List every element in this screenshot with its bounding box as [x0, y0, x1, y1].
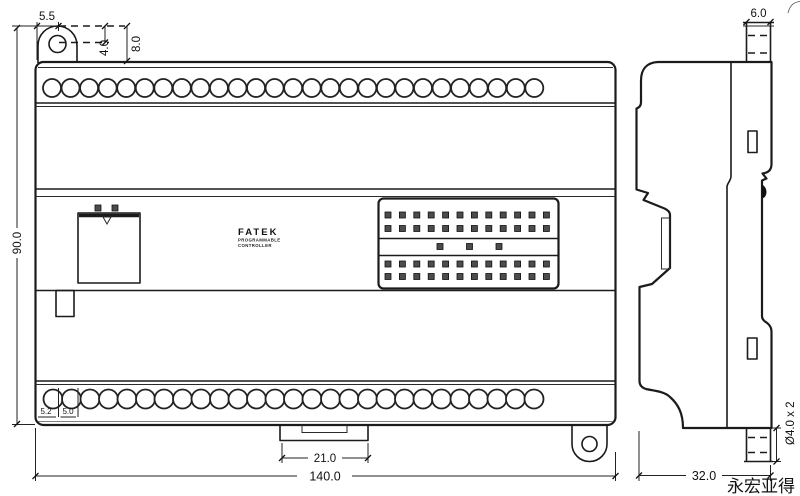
- mount-post-bottom-hidden: [748, 438, 769, 453]
- dimension-drawing: FATEK PROGRAMMABLE CONTROLLER 5.5: [0, 0, 800, 496]
- dim-height: 90.0: [12, 232, 24, 254]
- dim-hole-drop: 4.0: [99, 40, 111, 56]
- door-indicator-2: [112, 205, 118, 211]
- din-clip-inner: [302, 425, 347, 433]
- side-profile: [637, 62, 772, 428]
- door-latch-triangle: [103, 217, 111, 224]
- dim-top-drop: 8.0: [131, 36, 143, 52]
- dim-depth: 32.0: [692, 469, 716, 483]
- drawing-canvas: FATEK PROGRAMMABLE CONTROLLER 5.5: [0, 0, 800, 496]
- watermark-text: 永宏亚得: [727, 477, 795, 496]
- dim-clip-width: 21.0: [314, 453, 336, 465]
- mount-post-bottom: [744, 428, 773, 462]
- brand-text: FATEK: [238, 227, 278, 238]
- dim-ear-offset: 5.5: [39, 11, 55, 23]
- side-dimensions: Ø4.0 x 2 32.0: [636, 402, 797, 483]
- fatek-logo: FATEK PROGRAMMABLE CONTROLLER: [238, 227, 281, 248]
- mount-post-top-hidden: [748, 36, 769, 54]
- mounting-ear-bottom: [572, 426, 607, 462]
- mount-post-bottom-sides: [747, 428, 771, 462]
- rail-slot-lower: [748, 338, 758, 359]
- dim-hole-spec-lines: [772, 428, 781, 462]
- door-indicator-1: [95, 205, 101, 211]
- port-cover: [56, 291, 74, 317]
- mount-post-top: 6.0: [743, 8, 774, 62]
- dim-width: 140.0: [309, 470, 340, 484]
- rail-hook-catch: [762, 185, 766, 199]
- dim-hole-spec: Ø4.0 x 2: [785, 402, 797, 445]
- expansion-door: [78, 213, 140, 283]
- terminal-row-top: [43, 79, 543, 97]
- body-outline: [36, 62, 616, 425]
- brand-sub1: PROGRAMMABLE: [238, 238, 281, 243]
- mount-post-top-sides: [747, 23, 771, 63]
- corner-mark: [788, 2, 800, 14]
- mounting-ear-bottom-hole: [582, 437, 597, 452]
- mounting-ear-top-hole: [49, 36, 66, 53]
- front-view: FATEK PROGRAMMABLE CONTROLLER 5.5: [12, 11, 619, 484]
- terminal-row-bottom: [44, 390, 544, 409]
- dim-first-hole-offset: 5.2: [40, 407, 52, 416]
- dim-hole-pitch: 5.0: [62, 407, 74, 416]
- side-inner-line: [727, 62, 731, 428]
- mounting-ear-top: [38, 26, 77, 63]
- rail-clip-slider: [662, 218, 670, 269]
- brand-sub2: CONTROLLER: [238, 243, 272, 248]
- side-view: 6.0 Ø4.0 x 2 32.0: [636, 8, 797, 483]
- dim-post-width: 6.0: [751, 8, 767, 20]
- io-connector-pins: [385, 212, 549, 280]
- io-connector: [379, 199, 559, 289]
- dim-height-lines: [12, 26, 37, 425]
- rail-slot-upper: [748, 131, 757, 153]
